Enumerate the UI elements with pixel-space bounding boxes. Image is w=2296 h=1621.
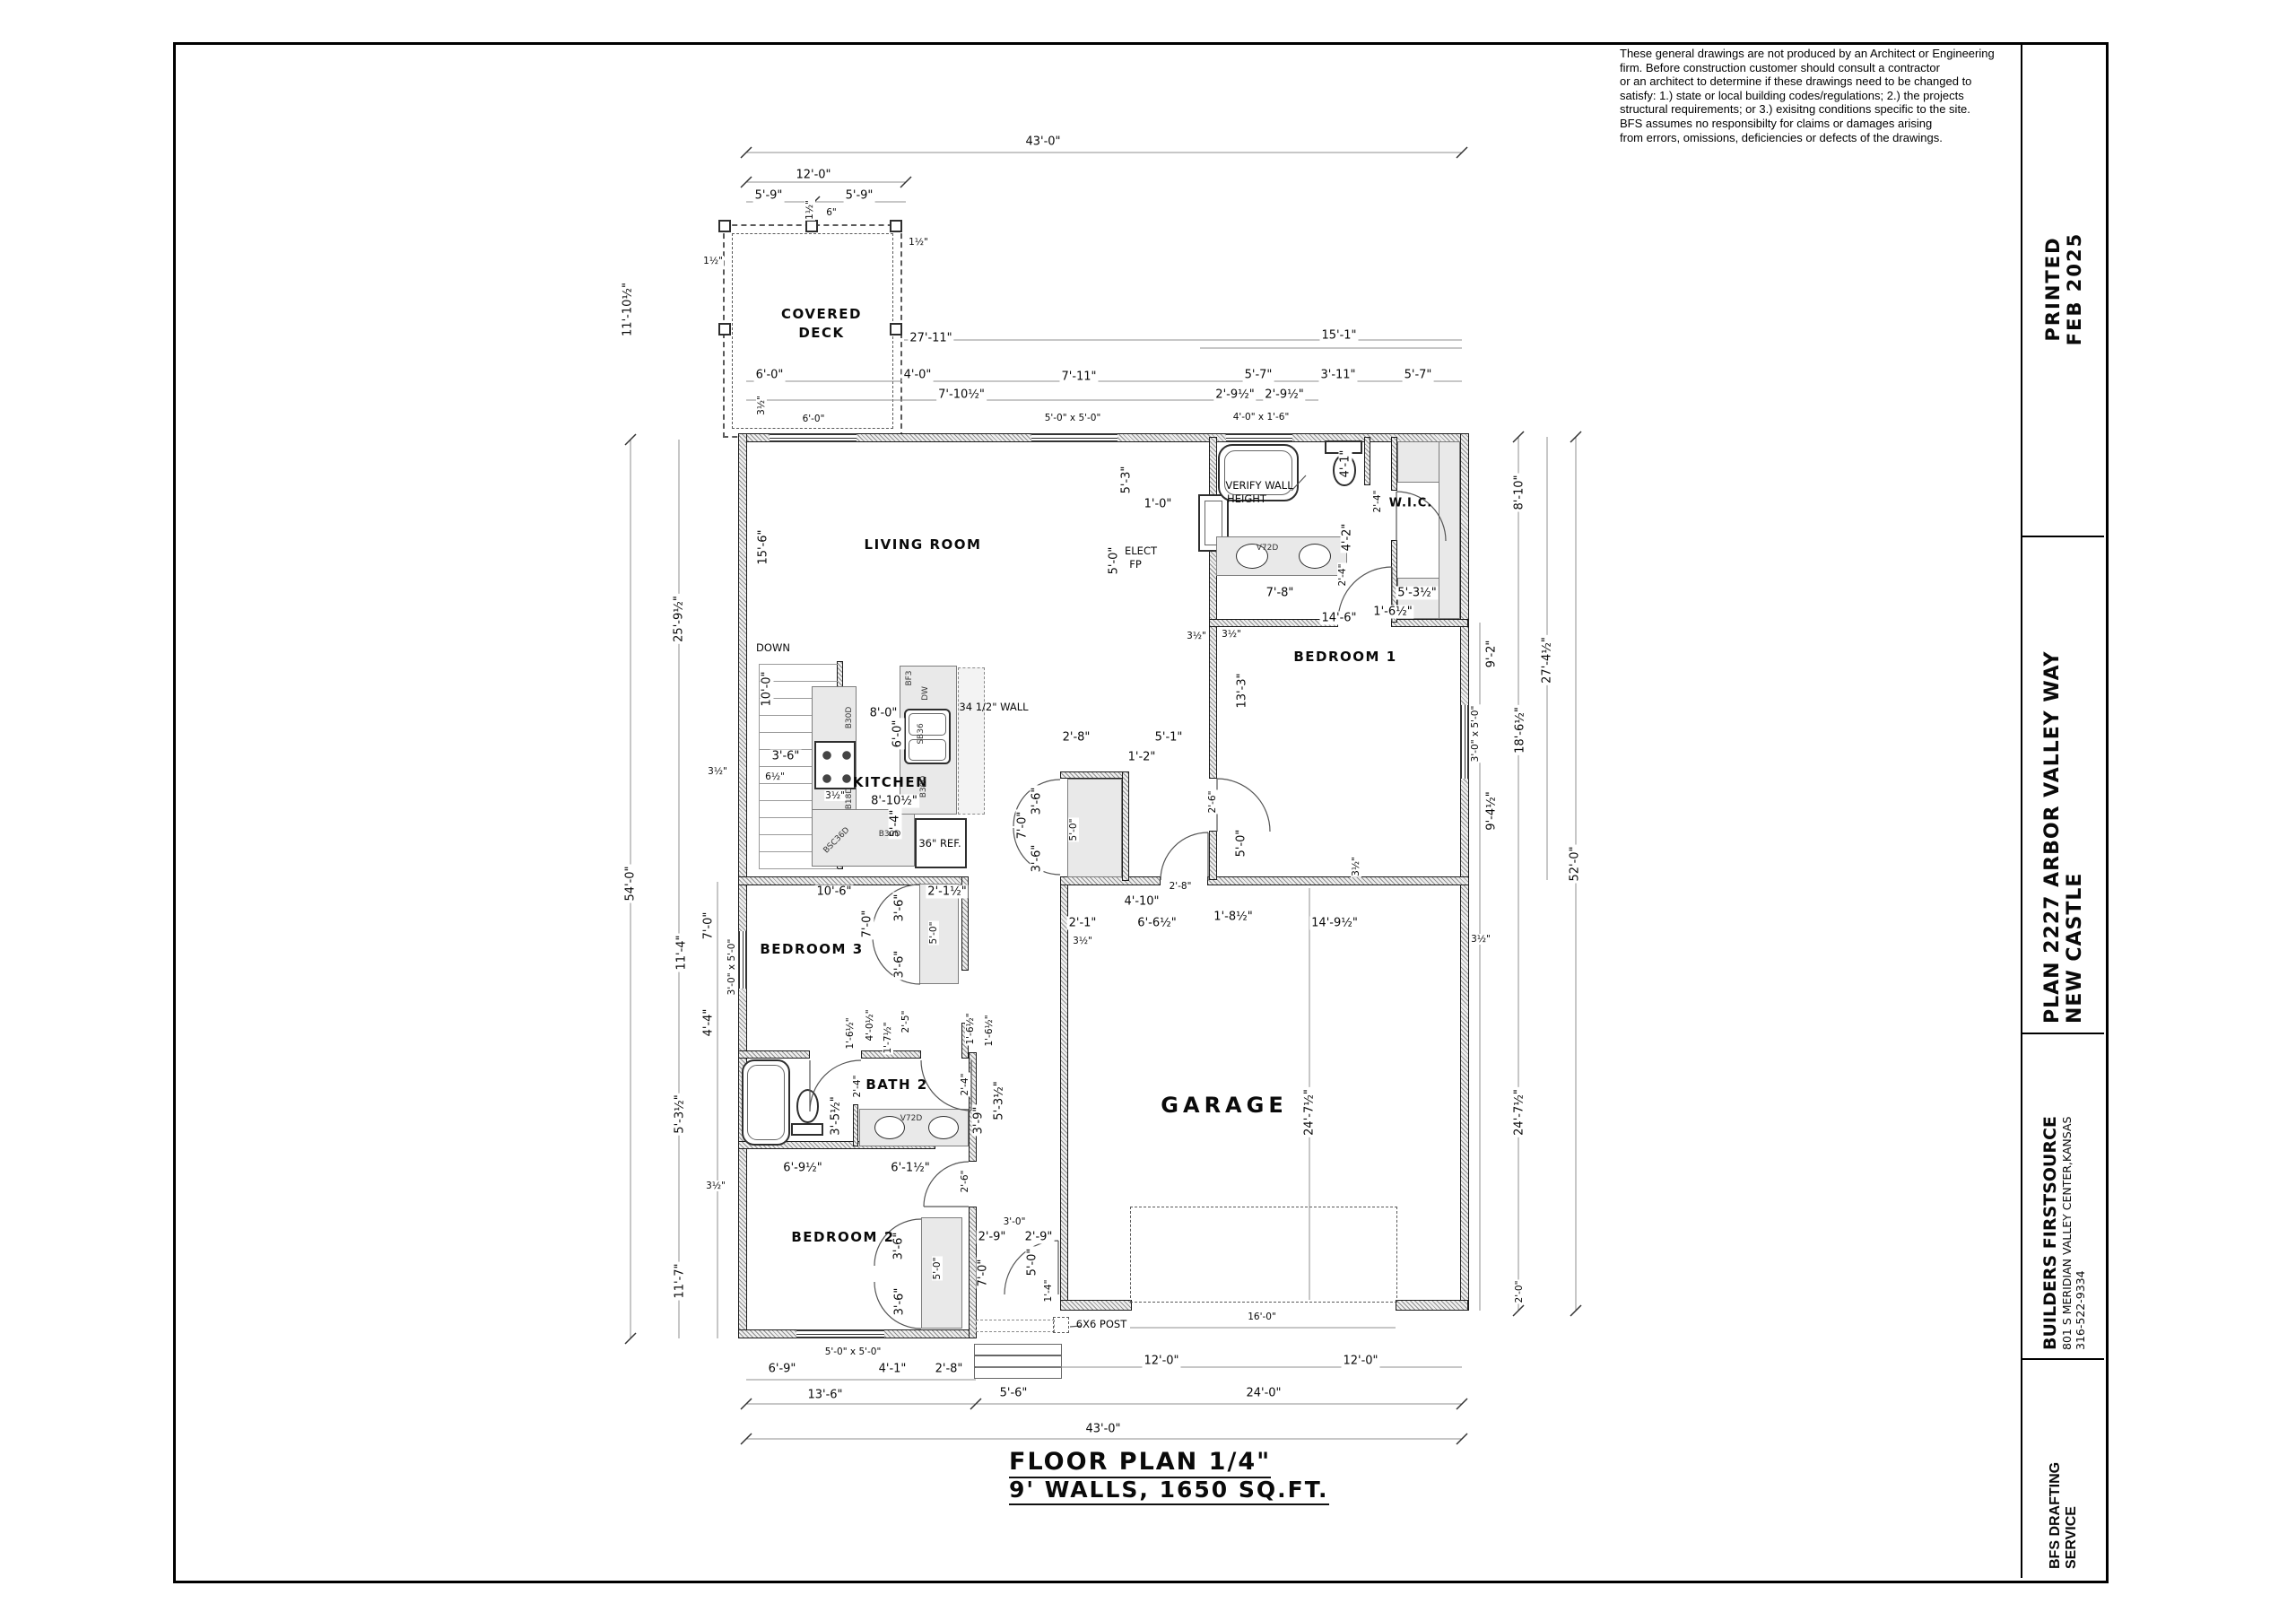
dimension-label: 2'-1½": [926, 885, 968, 899]
dimension-label: 6½": [764, 771, 786, 782]
dimension-label: 3'-6": [1031, 843, 1044, 875]
dimension-label: 4'-4": [702, 1007, 716, 1039]
annotation: 36" REF.: [918, 837, 961, 850]
cabinet-code: B18D: [845, 788, 854, 810]
dimension-label: 1½": [804, 199, 815, 221]
dimension-label: 5'-6": [998, 1387, 1030, 1400]
room-label: DECK: [798, 325, 844, 341]
annotation: VERIFY WALL: [1225, 479, 1292, 492]
dimension-label: 5'-3½": [993, 1079, 1006, 1121]
dimension-label: 13'-6": [805, 1389, 844, 1402]
dimension-label: 1'-2": [1126, 751, 1158, 764]
room-label: BEDROOM 3: [760, 941, 863, 957]
drawing-sheet: These general drawings are not produced …: [0, 0, 2296, 1621]
dimension-label: 7'-0": [1016, 810, 1030, 841]
dimension-label: 7'-10½": [936, 388, 987, 402]
dimension-label: 3'-5½": [830, 1094, 843, 1137]
cabinet-code: B30D: [845, 707, 854, 729]
dimension-label: 8'-10": [1513, 473, 1526, 511]
dimension-label: 3'-6": [770, 750, 802, 763]
annotation: ELECT: [1125, 545, 1157, 557]
dimension-label: 2'-9½": [1263, 388, 1305, 402]
dimension-label: 2'-9": [1023, 1231, 1055, 1244]
dimension-label: 6'-6½": [1135, 917, 1178, 930]
dimension-label: 24'-0": [1244, 1387, 1283, 1400]
room-label: LIVING ROOM: [865, 536, 982, 553]
dimension-label: 52'-0": [1569, 844, 1582, 883]
dimension-label: 4'-0": [902, 369, 934, 382]
dimension-label: 3'-6": [893, 949, 907, 980]
dimension-label: 12'-0": [1341, 1355, 1379, 1368]
dimension-label: 3'-6": [893, 1286, 907, 1318]
dimension-label: 10'-6": [814, 885, 853, 899]
dimension-label: 7'-8": [1265, 587, 1296, 600]
dimension-label: 54'-0": [624, 864, 638, 902]
dimension-label: 1'-8½": [1212, 911, 1254, 924]
dimension-label: 6'-9": [767, 1363, 798, 1376]
room-label: GARAGE: [1161, 1093, 1287, 1118]
dimension-label: 11'-7": [674, 1261, 687, 1300]
dimension-label: 4'-1": [1339, 449, 1352, 480]
dimension-label: 15'-1": [1319, 329, 1358, 343]
dimension-label: 1½": [908, 237, 929, 248]
dimension-label: 3½": [1470, 934, 1492, 945]
dimension-label: 5'-7": [1243, 369, 1274, 382]
dimension-label: 3½": [705, 1181, 726, 1191]
dimension-label: 12'-0": [794, 169, 832, 182]
dimension-label: 6'-0": [754, 369, 786, 382]
dimension-label: 3'-0" x 5'-0": [1470, 705, 1481, 763]
dimension-label: 3'-6": [892, 1231, 906, 1262]
dimension-label: 6'-0": [802, 414, 826, 424]
dimension-label: 5'-9": [753, 189, 785, 203]
dimension-label: 9'-4½": [1485, 789, 1499, 832]
dimension-label: 3'-0": [1003, 1216, 1027, 1227]
dimension-label: 6'-0": [891, 719, 905, 750]
dimension-label: 4'-1": [877, 1363, 909, 1376]
cabinet-code: V72D: [1257, 544, 1279, 553]
dimension-label: 5'-1": [1153, 731, 1185, 745]
dimension-label: 7'-0": [861, 909, 874, 940]
dimension-label: 5'-0": [928, 921, 939, 946]
dimension-label: 27'-4½": [1541, 635, 1554, 685]
dimension-label: 10'-0": [761, 669, 774, 708]
dimension-label: 3½": [756, 395, 767, 416]
dimension-label: 1'-6½": [965, 1012, 976, 1045]
dimension-label: 7'-11": [1059, 370, 1098, 384]
dimension-label: 2'-4": [960, 1073, 970, 1097]
dimension-label: 5'-0" x 5'-0": [1044, 413, 1102, 423]
dimension-label: 11'-10½": [622, 281, 635, 338]
dimension-label: 3'-0" x 5'-0": [726, 938, 737, 997]
annotation: FP: [1129, 558, 1142, 571]
dimension-label: 2'-8": [934, 1363, 965, 1376]
room-label: COVERED: [781, 306, 862, 322]
dimension-label: 4'-0" x 1'-6": [1232, 412, 1291, 423]
dimension-lines: [0, 0, 2296, 1621]
dimension-label: 3'-11": [1318, 369, 1357, 382]
dimension-label: 2'-9": [977, 1231, 1008, 1244]
dimension-label: 5'-0" x 5'-0": [824, 1346, 883, 1357]
dimension-label: 6'-1½": [889, 1162, 931, 1175]
dimension-label: 25'-9½": [673, 594, 686, 644]
dimension-label: 24'-7½": [1303, 1087, 1317, 1137]
dimension-label: 4'-2": [1341, 522, 1354, 553]
dimension-label: 5'-3": [1120, 465, 1134, 496]
dimension-label: 3½": [1186, 631, 1207, 641]
dimension-label: 6'-9½": [781, 1162, 823, 1175]
dimension-label: 5'-0": [1108, 545, 1121, 577]
cabinet-code: BF3: [905, 670, 914, 685]
dimension-label: 14'-9½": [1309, 917, 1360, 930]
dimension-label: 3'-6": [893, 893, 907, 924]
dimension-label: 16'-0": [1247, 1312, 1277, 1322]
room-label: BEDROOM 2: [791, 1229, 894, 1245]
dimension-label: 43'-0": [1023, 135, 1062, 149]
dimension-label: 8'-10½": [869, 795, 919, 808]
dimension-label: 43'-0": [1083, 1423, 1122, 1436]
dimension-label: 12'-0": [1142, 1355, 1180, 1368]
dimension-label: 24'-7½": [1513, 1087, 1526, 1137]
dimension-label: 3'-9": [972, 1105, 986, 1137]
dimension-label: 2'-8": [1061, 731, 1092, 745]
room-label: BATH 2: [865, 1076, 927, 1093]
dimension-label: 1'-0": [1143, 498, 1174, 511]
dimension-label: 2'-4": [1372, 490, 1383, 514]
dimension-label: 5'-0": [932, 1257, 943, 1281]
dimension-label: 9'-2": [1485, 639, 1499, 670]
dimension-label: 2'-9½": [1213, 388, 1256, 402]
dimension-label: 7'-0": [977, 1258, 990, 1289]
dimension-label: 5'-0": [1235, 828, 1248, 859]
dimension-label: 2'-8": [1169, 881, 1193, 892]
dimension-label: 2'-1": [1067, 917, 1099, 930]
dimension-label: 4'-10": [1122, 895, 1161, 909]
dimension-label: 15'-6": [757, 527, 770, 566]
dimension-label: 4'-0½": [865, 1008, 875, 1041]
dimension-label: 2'-6": [1207, 790, 1218, 815]
dimension-label: 1'-6½": [845, 1016, 856, 1050]
dimension-label: 18'-6½": [1514, 705, 1527, 755]
cabinet-code: B30D: [879, 830, 901, 839]
cabinet-code: SB36: [917, 723, 926, 744]
dimension-label: 6": [825, 207, 838, 218]
dimension-label: 3½": [1221, 629, 1242, 640]
dimension-label: 3½": [1072, 936, 1093, 946]
dimension-label: 5'-9": [844, 189, 875, 203]
dimension-label: 2'-4": [852, 1075, 863, 1099]
room-label: BEDROOM 1: [1293, 649, 1396, 665]
cabinet-code: DW: [921, 686, 930, 701]
annotation: 6X6 POST: [1076, 1318, 1126, 1330]
dimension-label: 2'-6": [960, 1170, 970, 1194]
dimension-label: 3½": [707, 766, 728, 777]
dimension-label: 3'-6": [1031, 786, 1044, 817]
dimension-label: 5'-3½": [674, 1093, 687, 1135]
dimension-label: 1'-6½": [984, 1014, 995, 1047]
dimension-label: 2'-4": [1337, 563, 1348, 588]
dimension-label: 3½": [824, 790, 846, 801]
dimension-label: 13'-3": [1236, 671, 1249, 710]
dimension-label: 1'-7½": [883, 1021, 893, 1054]
dimension-label: 5'-7": [1403, 369, 1434, 382]
dimension-label: 5'-3½": [1396, 587, 1438, 600]
dimension-label: 2'-0": [1514, 1280, 1525, 1304]
cabinet-code: B30D: [919, 776, 928, 798]
cabinet-code: V72D: [900, 1114, 923, 1123]
dimension-label: 7'-0": [702, 911, 716, 942]
dimension-label: 27'-11": [908, 332, 953, 345]
annotation: 34 1/2" WALL: [959, 701, 1028, 713]
dimension-label: 1'-6½": [1371, 606, 1413, 619]
dimension-label: 3½": [1351, 856, 1361, 877]
dimension-label: 14'-6": [1319, 612, 1358, 625]
dimension-label: 1'-4": [1043, 1279, 1054, 1303]
annotation: HEIGHT: [1227, 492, 1266, 505]
dimension-label: 5'-0": [1068, 818, 1079, 842]
room-label: W.I.C.: [1389, 497, 1432, 510]
dimension-label: 11'-4": [675, 933, 689, 972]
room-label: KITCHEN: [853, 774, 928, 790]
dimension-label: 5'-0": [1026, 1247, 1039, 1278]
dimension-label: 2'-5": [900, 1010, 911, 1034]
annotation: DOWN: [756, 641, 790, 654]
dimension-label: 1½": [702, 256, 724, 266]
